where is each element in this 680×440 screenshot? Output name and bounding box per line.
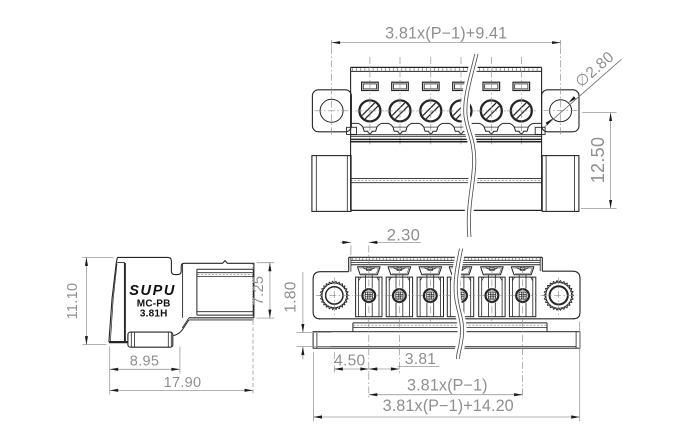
svg-text:3.81: 3.81 (405, 351, 436, 368)
svg-text:3.81x(P−1)+9.41: 3.81x(P−1)+9.41 (385, 24, 507, 42)
svg-text:7.25: 7.25 (251, 276, 267, 305)
svg-text:17.90: 17.90 (164, 375, 202, 391)
svg-text:1.80: 1.80 (282, 281, 299, 312)
svg-text:12.50: 12.50 (588, 137, 608, 184)
svg-text:11.10: 11.10 (65, 283, 81, 320)
svg-text:SUPU: SUPU (129, 283, 176, 299)
svg-text:4.50: 4.50 (334, 352, 365, 369)
svg-text:2.30: 2.30 (387, 227, 420, 245)
svg-text:8.95: 8.95 (130, 354, 159, 370)
svg-text:3.81x(P−1): 3.81x(P−1) (407, 376, 488, 394)
svg-text:3.81x(P−1)+14.20: 3.81x(P−1)+14.20 (383, 397, 514, 415)
svg-text:3.81H: 3.81H (140, 309, 168, 320)
